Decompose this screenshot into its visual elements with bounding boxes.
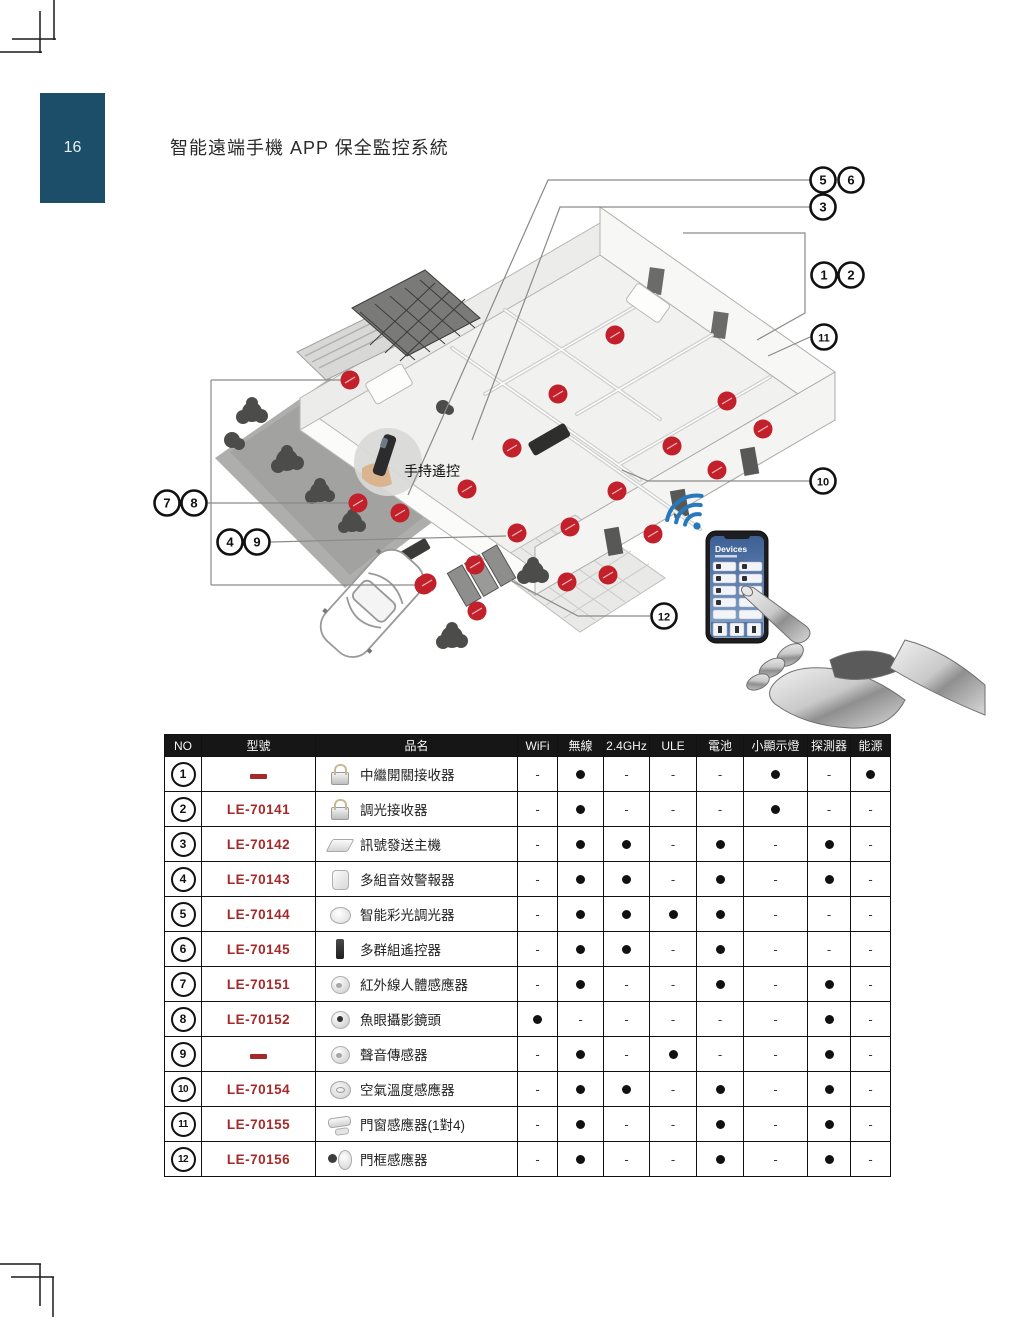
feature-dash: -	[624, 1152, 628, 1167]
feature-dash: -	[868, 942, 872, 957]
feature-dot-cell	[558, 1037, 604, 1072]
feature-dash-cell: -	[744, 932, 808, 967]
feature-dash-cell: -	[518, 1037, 558, 1072]
feature-dash-cell: -	[558, 1002, 604, 1037]
table-row: 6LE-70145多群組遙控器-----	[165, 932, 891, 967]
feature-dash-cell: -	[744, 1037, 808, 1072]
page-number: 16	[40, 93, 105, 203]
feature-dash-cell: -	[851, 792, 891, 827]
feature-dot-cell	[851, 757, 891, 792]
row-number-badge: 11	[171, 1112, 196, 1137]
feature-dot	[576, 1155, 585, 1164]
feature-dash-cell: -	[650, 1002, 697, 1037]
product-cell: 訊號發送主機	[316, 827, 518, 862]
feature-dash-cell: -	[604, 1037, 650, 1072]
product-photo-dome-icon	[326, 1041, 354, 1067]
feature-dot-cell	[604, 862, 650, 897]
feature-dash-cell: -	[851, 1107, 891, 1142]
feature-dash-cell: -	[808, 757, 851, 792]
model-cell: LE-70154	[202, 1072, 316, 1107]
feature-dot	[716, 840, 725, 849]
product-cell: 聲音傳感器	[316, 1037, 518, 1072]
page-title: 智能遠端手機 APP 保全監控系統	[170, 134, 449, 160]
feature-dash: -	[535, 942, 539, 957]
product-photo-lock-icon	[326, 761, 354, 787]
feature-dot	[576, 805, 585, 814]
feature-dash-cell: -	[697, 792, 744, 827]
no-cell: 11	[165, 1107, 202, 1142]
feature-dash: -	[671, 942, 675, 957]
no-cell: 12	[165, 1142, 202, 1177]
model-number: LE-70141	[227, 802, 290, 817]
feature-dash: -	[535, 907, 539, 922]
feature-dot	[825, 875, 834, 884]
product-photo-remote-icon	[326, 936, 354, 962]
table-row: 8LE-70152魚眼攝影鏡頭------	[165, 1002, 891, 1037]
model-number: LE-70154	[227, 1082, 290, 1097]
feature-dash-cell: -	[697, 757, 744, 792]
product-photo-cam-icon	[326, 1006, 354, 1032]
feature-dash-cell: -	[650, 862, 697, 897]
product-cell: 多群組遙控器	[316, 932, 518, 967]
callout-4: 4	[218, 530, 243, 555]
feature-dot	[825, 1050, 834, 1059]
product-name: 訊號發送主機	[360, 834, 441, 854]
feature-dash-cell: -	[744, 1072, 808, 1107]
product-name: 中繼開關接收器	[360, 764, 455, 784]
feature-dot	[576, 945, 585, 954]
svg-text:1: 1	[820, 268, 827, 283]
table-row: 5LE-70144智能彩光調光器----	[165, 897, 891, 932]
feature-dot-cell	[604, 897, 650, 932]
product-cell: 智能彩光調光器	[316, 897, 518, 932]
product-name: 聲音傳感器	[360, 1044, 428, 1064]
product-photo-bar-icon	[326, 1111, 354, 1137]
feature-dot	[576, 1085, 585, 1094]
feature-dash: -	[868, 907, 872, 922]
device-table-body: 1中繼開關接收器-----2LE-70141調光接收器------3LE-701…	[165, 757, 891, 1177]
product-cell: 多組音效警報器	[316, 862, 518, 897]
feature-dash-cell: -	[604, 1142, 650, 1177]
feature-dot-cell	[558, 862, 604, 897]
feature-dash-cell: -	[650, 967, 697, 1002]
product-cell: 魚眼攝影鏡頭	[316, 1002, 518, 1037]
product-name: 多組音效警報器	[360, 869, 455, 889]
feature-dot-cell	[808, 1072, 851, 1107]
feature-dot-cell	[558, 1107, 604, 1142]
feature-dash: -	[827, 942, 831, 957]
feature-dash: -	[773, 1082, 777, 1097]
feature-dot	[825, 1085, 834, 1094]
feature-dot	[669, 1050, 678, 1059]
feature-dot	[622, 1085, 631, 1094]
feature-dash-cell: -	[518, 1072, 558, 1107]
model-cell: LE-70143	[202, 862, 316, 897]
feature-dash: -	[671, 1012, 675, 1027]
product-name: 調光接收器	[360, 799, 428, 819]
table-row: 7LE-70151紅外線人體感應器-----	[165, 967, 891, 1002]
row-number-badge: 9	[171, 1042, 196, 1067]
row-number-badge: 6	[171, 937, 196, 962]
svg-text:9: 9	[253, 535, 260, 550]
callout-5: 5	[811, 168, 836, 193]
feature-dash: -	[827, 907, 831, 922]
feature-dot-cell	[558, 1142, 604, 1177]
product-photo-lock-icon	[326, 796, 354, 822]
feature-dash: -	[827, 767, 831, 782]
feature-dash: -	[718, 802, 722, 817]
row-number-badge: 1	[171, 762, 196, 787]
feature-dot	[825, 840, 834, 849]
feature-dash-cell: -	[518, 827, 558, 862]
feature-dot	[622, 875, 631, 884]
feature-dot-cell	[558, 827, 604, 862]
svg-text:11: 11	[818, 333, 830, 345]
feature-dash: -	[773, 1152, 777, 1167]
feature-dash-cell: -	[808, 792, 851, 827]
column-header: 探測器	[808, 735, 851, 757]
column-header: 2.4GHz	[604, 735, 650, 757]
feature-dot	[716, 1155, 725, 1164]
feature-dash: -	[671, 1152, 675, 1167]
feature-dash-cell: -	[604, 967, 650, 1002]
feature-dash: -	[868, 1152, 872, 1167]
column-header: 無線	[558, 735, 604, 757]
row-number-badge: 5	[171, 902, 196, 927]
column-header: WiFi	[518, 735, 558, 757]
feature-dash-cell: -	[851, 897, 891, 932]
feature-dash-cell: -	[744, 967, 808, 1002]
no-cell: 6	[165, 932, 202, 967]
feature-dot	[576, 770, 585, 779]
catalog-page: 563121110784912 手持遙控 Devices	[0, 0, 1032, 1317]
no-cell: 9	[165, 1037, 202, 1072]
table-row: 10LE-70154空氣溫度感應器----	[165, 1072, 891, 1107]
feature-dash: -	[535, 977, 539, 992]
feature-dot	[716, 945, 725, 954]
feature-dot-cell	[697, 1072, 744, 1107]
callout-3: 3	[811, 195, 836, 220]
model-number: LE-70156	[227, 1152, 290, 1167]
svg-text:10: 10	[817, 477, 829, 489]
feature-dash: -	[773, 977, 777, 992]
feature-dot	[622, 840, 631, 849]
model-number: LE-70145	[227, 942, 290, 957]
column-header: 能源	[851, 735, 891, 757]
feature-dot-cell	[808, 1107, 851, 1142]
no-model-dash	[250, 1054, 267, 1059]
product-name: 空氣溫度感應器	[360, 1079, 455, 1099]
feature-dot	[866, 770, 875, 779]
feature-dot	[576, 840, 585, 849]
feature-dash-cell: -	[604, 1002, 650, 1037]
svg-text:4: 4	[226, 535, 234, 550]
callout-8: 8	[182, 491, 207, 516]
row-number-badge: 3	[171, 832, 196, 857]
feature-dot	[533, 1015, 542, 1024]
model-cell: LE-70145	[202, 932, 316, 967]
feature-dash-cell: -	[744, 1002, 808, 1037]
feature-dot	[771, 805, 780, 814]
feature-dash-cell: -	[851, 967, 891, 1002]
table-row: 3LE-70142訊號發送主機----	[165, 827, 891, 862]
product-photo-pair-icon	[326, 1146, 354, 1172]
feature-dot-cell	[697, 827, 744, 862]
table-row: 11LE-70155門窗感應器(1對4)-----	[165, 1107, 891, 1142]
feature-dash: -	[671, 802, 675, 817]
model-number: LE-70144	[227, 907, 290, 922]
table-row: 12LE-70156門框感應器-----	[165, 1142, 891, 1177]
column-header: 電池	[697, 735, 744, 757]
feature-dash: -	[535, 802, 539, 817]
remote-label: 手持遙控	[404, 463, 460, 479]
feature-dash-cell: -	[650, 792, 697, 827]
product-cell: 門框感應器	[316, 1142, 518, 1177]
feature-dash-cell: -	[851, 1072, 891, 1107]
feature-dot-cell	[808, 967, 851, 1002]
column-header: NO	[165, 735, 202, 757]
product-cell: 空氣溫度感應器	[316, 1072, 518, 1107]
device-table: NO型號品名WiFi無線2.4GHzULE電池小顯示燈探測器能源 1中繼開關接收…	[164, 734, 891, 1177]
feature-dot	[576, 910, 585, 919]
robot-hand-icon	[740, 584, 985, 728]
feature-dot-cell	[808, 1002, 851, 1037]
feature-dash-cell: -	[650, 932, 697, 967]
feature-dot-cell	[650, 897, 697, 932]
feature-dash-cell: -	[744, 862, 808, 897]
no-cell: 5	[165, 897, 202, 932]
feature-dash-cell: -	[518, 757, 558, 792]
feature-dash-cell: -	[518, 897, 558, 932]
feature-dash-cell: -	[518, 932, 558, 967]
feature-dash-cell: -	[518, 967, 558, 1002]
table-row: 9聲音傳感器-----	[165, 1037, 891, 1072]
feature-dot-cell	[808, 827, 851, 862]
product-cell: 調光接收器	[316, 792, 518, 827]
row-number-badge: 2	[171, 797, 196, 822]
feature-dot	[576, 980, 585, 989]
feature-dash: -	[868, 837, 872, 852]
row-number-badge: 12	[171, 1147, 196, 1172]
svg-text:2: 2	[847, 268, 854, 283]
feature-dot-cell	[808, 1142, 851, 1177]
feature-dash-cell: -	[518, 1142, 558, 1177]
feature-dot-cell	[604, 827, 650, 862]
feature-dot-cell	[697, 967, 744, 1002]
model-cell: LE-70152	[202, 1002, 316, 1037]
row-number-badge: 8	[171, 1007, 196, 1032]
feature-dash: -	[535, 837, 539, 852]
feature-dot-cell	[558, 1072, 604, 1107]
feature-dash: -	[868, 1047, 872, 1062]
column-header: 小顯示燈	[744, 735, 808, 757]
feature-dash: -	[535, 872, 539, 887]
feature-dot	[771, 770, 780, 779]
product-cell: 中繼開關接收器	[316, 757, 518, 792]
feature-dash: -	[868, 872, 872, 887]
row-number-badge: 7	[171, 972, 196, 997]
feature-dash: -	[535, 767, 539, 782]
feature-dash: -	[624, 802, 628, 817]
feature-dot-cell	[697, 932, 744, 967]
feature-dot	[716, 1120, 725, 1129]
callout-11: 11	[812, 325, 837, 350]
feature-dot	[716, 875, 725, 884]
table-row: 2LE-70141調光接收器------	[165, 792, 891, 827]
feature-dash: -	[535, 1117, 539, 1132]
feature-dash-cell: -	[851, 827, 891, 862]
feature-dot-cell	[558, 792, 604, 827]
feature-dot-cell	[558, 757, 604, 792]
feature-dash-cell: -	[851, 932, 891, 967]
feature-dot	[576, 1120, 585, 1129]
feature-dot	[716, 980, 725, 989]
feature-dash: -	[868, 1012, 872, 1027]
feature-dash: -	[624, 1012, 628, 1027]
model-cell: LE-70144	[202, 897, 316, 932]
callout-7: 7	[155, 491, 180, 516]
feature-dash: -	[535, 1152, 539, 1167]
feature-dash: -	[827, 802, 831, 817]
feature-dash: -	[671, 977, 675, 992]
svg-text:6: 6	[847, 173, 854, 188]
callout-12: 12	[652, 604, 677, 629]
callout-6: 6	[839, 168, 864, 193]
model-cell	[202, 1037, 316, 1072]
product-photo-siren-icon	[326, 866, 354, 892]
feature-dot	[825, 980, 834, 989]
feature-dash: -	[671, 872, 675, 887]
table-row: 1中繼開關接收器-----	[165, 757, 891, 792]
feature-dot	[825, 1120, 834, 1129]
feature-dash-cell: -	[808, 932, 851, 967]
feature-dash: -	[671, 1082, 675, 1097]
feature-dash-cell: -	[604, 757, 650, 792]
table-row: 4LE-70143多組音效警報器----	[165, 862, 891, 897]
feature-dot	[669, 910, 678, 919]
feature-dot-cell	[604, 1072, 650, 1107]
feature-dash-cell: -	[744, 897, 808, 932]
product-photo-disc-icon	[326, 901, 354, 927]
feature-dash-cell: -	[604, 1107, 650, 1142]
feature-dash: -	[868, 1117, 872, 1132]
feature-dash: -	[718, 1047, 722, 1062]
feature-dash: -	[868, 1082, 872, 1097]
no-cell: 7	[165, 967, 202, 1002]
model-cell: LE-70155	[202, 1107, 316, 1142]
product-cell: 紅外線人體感應器	[316, 967, 518, 1002]
feature-dash-cell: -	[697, 1002, 744, 1037]
model-number: LE-70152	[227, 1012, 290, 1027]
feature-dot	[622, 910, 631, 919]
feature-dot	[716, 910, 725, 919]
no-cell: 3	[165, 827, 202, 862]
feature-dash-cell: -	[650, 827, 697, 862]
feature-dash: -	[578, 1012, 582, 1027]
feature-dash: -	[773, 1047, 777, 1062]
product-name: 魚眼攝影鏡頭	[360, 1009, 441, 1029]
feature-dot	[576, 875, 585, 884]
no-model-dash	[250, 774, 267, 779]
feature-dot	[622, 945, 631, 954]
feature-dot	[825, 1015, 834, 1024]
feature-dash: -	[535, 1082, 539, 1097]
feature-dot	[716, 1085, 725, 1094]
model-number: LE-70155	[227, 1117, 290, 1132]
feature-dot-cell	[697, 1142, 744, 1177]
column-header: 品名	[316, 735, 518, 757]
model-cell	[202, 757, 316, 792]
feature-dash-cell: -	[518, 792, 558, 827]
product-photo-hub-icon	[326, 831, 354, 857]
feature-dash-cell: -	[851, 1002, 891, 1037]
feature-dash: -	[773, 1117, 777, 1132]
smartphone: Devices	[706, 531, 768, 643]
feature-dash: -	[671, 1117, 675, 1132]
callout-10: 10	[811, 469, 836, 494]
row-number-badge: 4	[171, 867, 196, 892]
phone-screen-title: Devices	[715, 544, 747, 554]
product-name: 紅外線人體感應器	[360, 974, 468, 994]
feature-dash: -	[718, 1012, 722, 1027]
column-header: 型號	[202, 735, 316, 757]
model-cell: LE-70142	[202, 827, 316, 862]
svg-text:8: 8	[190, 496, 197, 511]
feature-dash: -	[624, 977, 628, 992]
feature-dash: -	[624, 767, 628, 782]
feature-dot-cell	[808, 862, 851, 897]
model-cell: LE-70156	[202, 1142, 316, 1177]
feature-dot-cell	[744, 757, 808, 792]
feature-dash-cell: -	[851, 862, 891, 897]
product-name: 門窗感應器(1對4)	[360, 1114, 465, 1134]
table-header-row: NO型號品名WiFi無線2.4GHzULE電池小顯示燈探測器能源	[165, 735, 891, 757]
callout-9: 9	[245, 530, 270, 555]
model-cell: LE-70151	[202, 967, 316, 1002]
product-name: 多群組遙控器	[360, 939, 441, 959]
feature-dot-cell	[808, 1037, 851, 1072]
feature-dash-cell: -	[697, 1037, 744, 1072]
feature-dot-cell	[697, 897, 744, 932]
device-table-wrap: NO型號品名WiFi無線2.4GHzULE電池小顯示燈探測器能源 1中繼開關接收…	[164, 734, 892, 1177]
feature-dot-cell	[558, 897, 604, 932]
model-number: LE-70151	[227, 977, 290, 992]
product-photo-dome-icon	[326, 971, 354, 997]
feature-dot-cell	[604, 932, 650, 967]
feature-dash-cell: -	[744, 1142, 808, 1177]
row-number-badge: 10	[171, 1077, 196, 1102]
callout-2: 2	[839, 263, 864, 288]
model-number: LE-70142	[227, 837, 290, 852]
feature-dash-cell: -	[851, 1037, 891, 1072]
feature-dash: -	[624, 1117, 628, 1132]
feature-dash: -	[773, 872, 777, 887]
product-photo-disc2-icon	[326, 1076, 354, 1102]
feature-dash: -	[671, 767, 675, 782]
feature-dash-cell: -	[744, 827, 808, 862]
feature-dot-cell	[558, 967, 604, 1002]
feature-dot-cell	[650, 1037, 697, 1072]
feature-dash-cell: -	[808, 897, 851, 932]
feature-dash: -	[718, 767, 722, 782]
feature-dash: -	[773, 837, 777, 852]
feature-dash: -	[868, 802, 872, 817]
feature-dash: -	[535, 1047, 539, 1062]
svg-text:3: 3	[819, 200, 826, 215]
feature-dash: -	[773, 942, 777, 957]
feature-dot	[825, 1155, 834, 1164]
model-cell: LE-70141	[202, 792, 316, 827]
